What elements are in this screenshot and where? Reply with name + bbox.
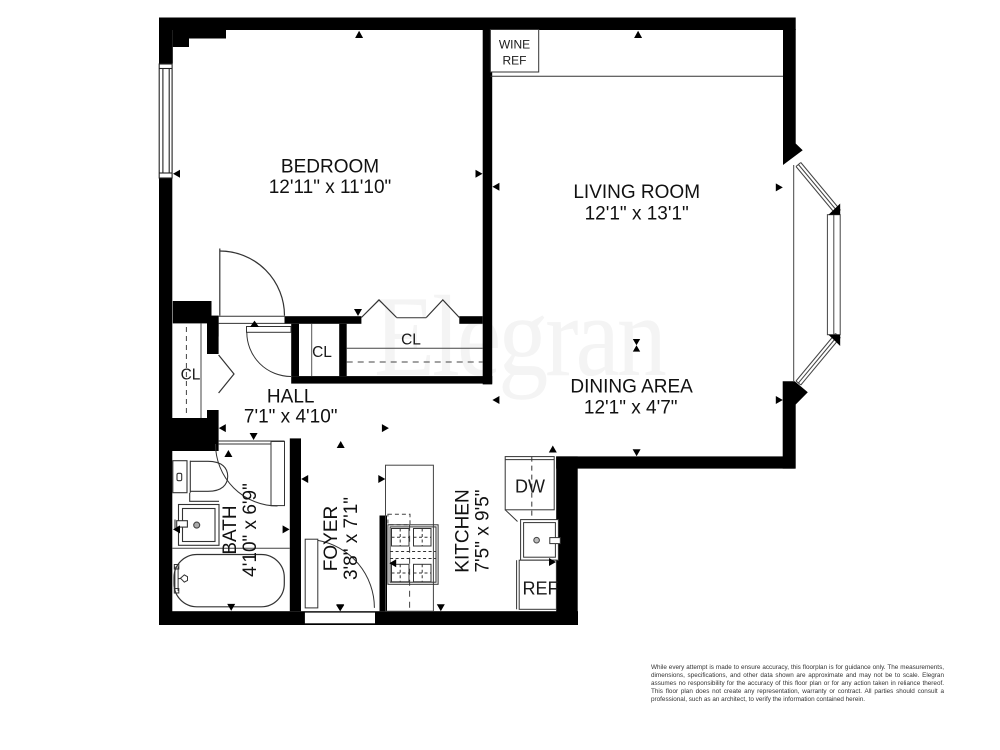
svg-text:4'10" x 6'9": 4'10" x 6'9" xyxy=(240,483,261,577)
svg-text:12'11" x 11'10": 12'11" x 11'10" xyxy=(269,177,392,198)
svg-text:BATH: BATH xyxy=(220,505,241,554)
svg-text:7'5" x 9'5": 7'5" x 9'5" xyxy=(473,489,494,572)
svg-text:HALL: HALL xyxy=(267,386,315,407)
svg-text:KITCHEN: KITCHEN xyxy=(453,489,474,572)
svg-text:BEDROOM: BEDROOM xyxy=(281,157,379,178)
svg-text:3'8" x 7'1": 3'8" x 7'1" xyxy=(341,497,362,580)
svg-text:CL: CL xyxy=(312,344,332,361)
svg-text:REF: REF xyxy=(523,579,559,599)
svg-text:12'1" x 4'7": 12'1" x 4'7" xyxy=(584,398,678,419)
svg-text:REF: REF xyxy=(503,54,527,68)
svg-text:CL: CL xyxy=(401,332,421,349)
svg-text:7'1" x 4'10": 7'1" x 4'10" xyxy=(244,407,338,428)
svg-text:WINE: WINE xyxy=(499,38,530,52)
svg-text:DINING AREA: DINING AREA xyxy=(570,377,693,398)
svg-text:CL: CL xyxy=(181,367,201,384)
svg-text:DW: DW xyxy=(515,477,545,497)
svg-text:LIVING ROOM: LIVING ROOM xyxy=(573,182,700,203)
svg-text:FOYER: FOYER xyxy=(321,506,342,571)
svg-text:12'1" x 13'1": 12'1" x 13'1" xyxy=(585,204,689,225)
